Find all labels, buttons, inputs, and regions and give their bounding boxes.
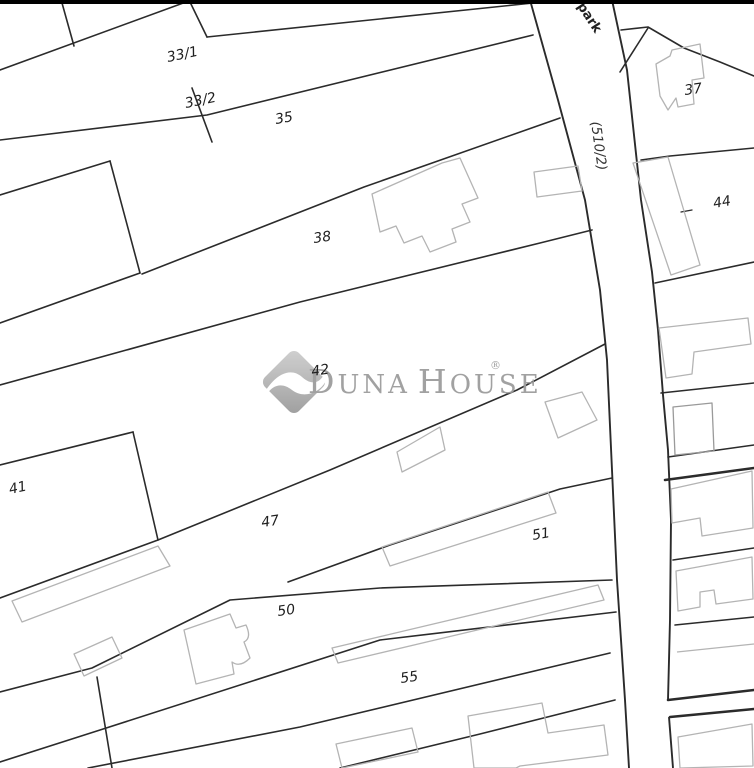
parcel-label-37: 37: [683, 81, 703, 99]
parcel-label-55: 55: [399, 669, 419, 687]
map-viewport: DUNAHOUSE ® 33/133/235384241475150553744…: [0, 0, 754, 768]
parcel-label-44: 44: [712, 193, 732, 212]
parcel-label-51: 51: [531, 525, 551, 544]
parcel-label-47: 47: [260, 513, 280, 531]
parcel-label-35: 35: [274, 109, 294, 128]
top-border-bar: [0, 0, 754, 4]
cadastral-map-canvas[interactable]: DUNAHOUSE ® 33/133/235384241475150553744…: [0, 0, 754, 768]
parcel-label-50: 50: [276, 602, 296, 620]
parcel-label-42: 42: [310, 362, 330, 380]
parcel-label-38: 38: [312, 229, 332, 247]
registered-mark: ®: [490, 359, 504, 372]
